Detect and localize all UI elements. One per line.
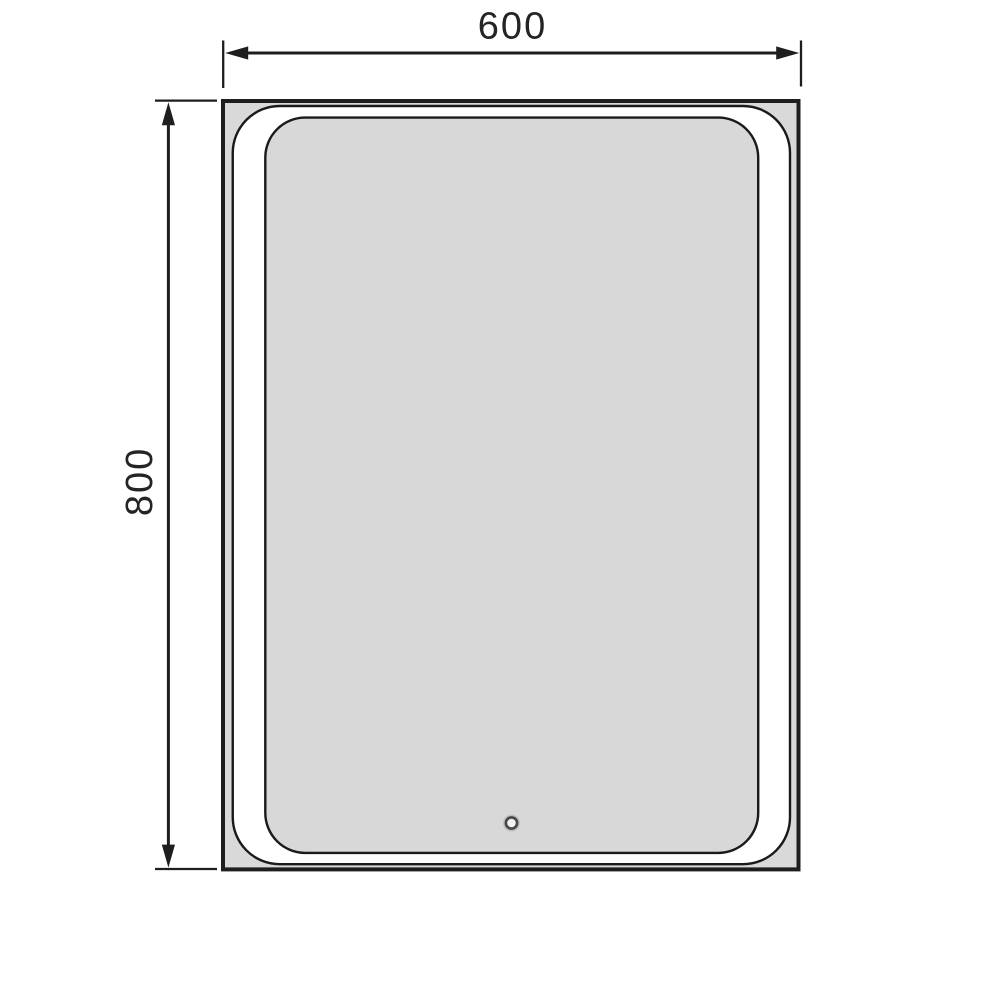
svg-text:600: 600 [478, 6, 547, 48]
svg-text:800: 800 [119, 447, 161, 516]
